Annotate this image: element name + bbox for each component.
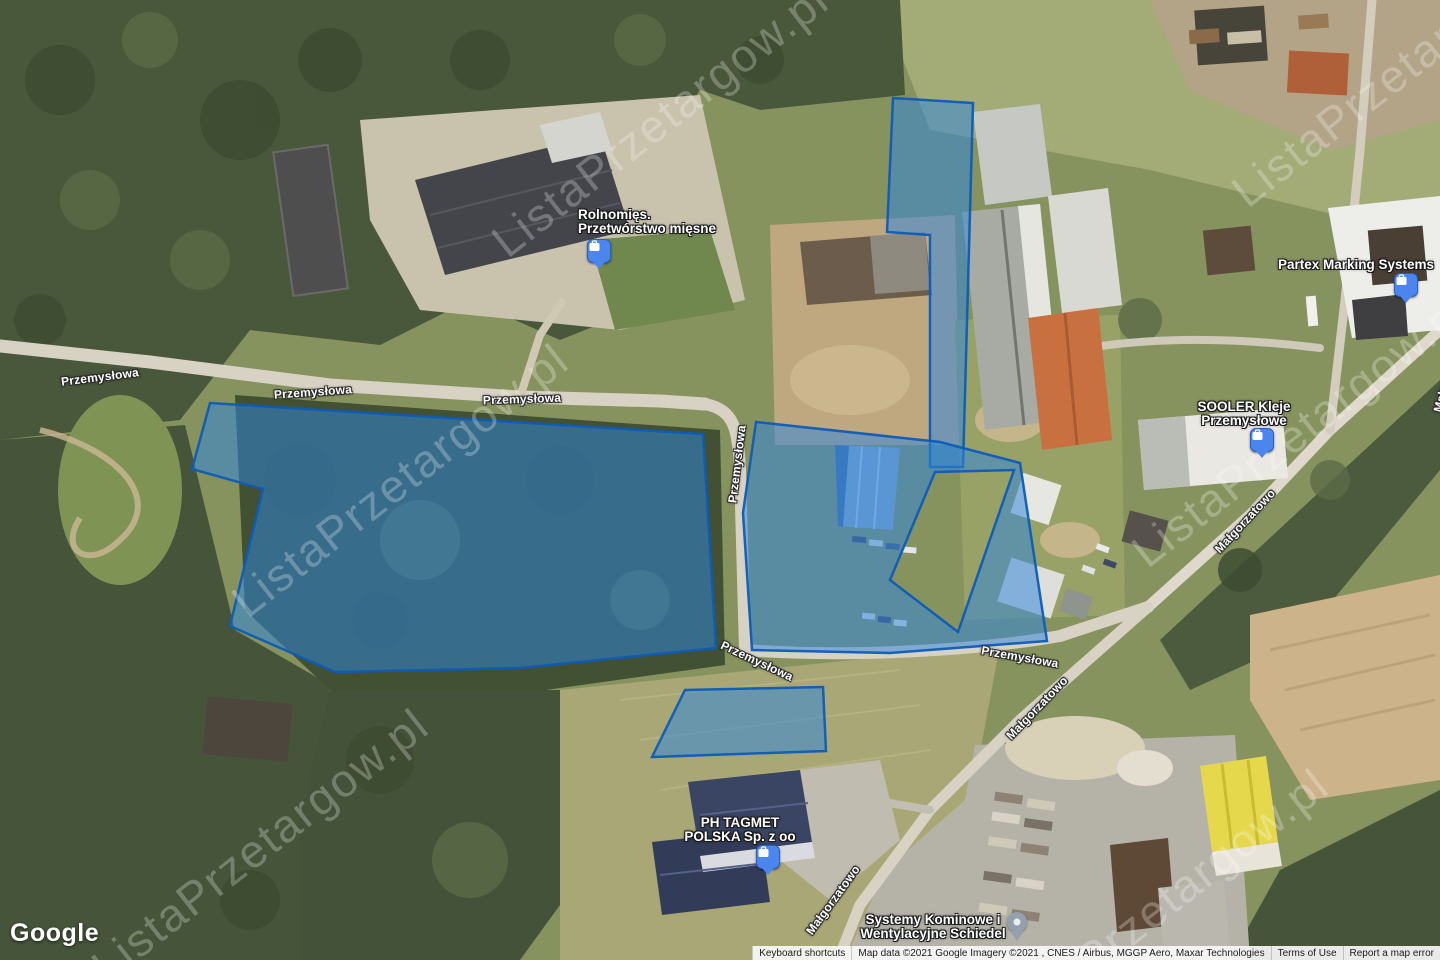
place-label-partex[interactable]: Partex Marking Systems	[1278, 258, 1434, 272]
poi-marker-sooler[interactable]	[1250, 428, 1274, 452]
place-label-sooler[interactable]: SOOLER Kleje Przemysłowe	[1197, 400, 1290, 428]
place-label-line: POLSKA Sp. z oo	[684, 829, 795, 844]
poi-marker-schiedel[interactable]	[1007, 912, 1027, 932]
place-label-line: Przetwórstwo mięsne	[578, 221, 716, 236]
map-data-attribution: Map data ©2021 Google Imagery ©2021 , CN…	[851, 946, 1270, 960]
poi-marker-rolnomies[interactable]	[587, 239, 611, 263]
briefcase-icon	[1395, 274, 1408, 287]
place-label-line: Przemysłowe	[1201, 413, 1287, 428]
keyboard-shortcuts-button[interactable]: Keyboard shortcuts	[752, 946, 851, 960]
map-viewport[interactable]: ListaPrzetargow.pl ListaPrzetargow.pl Li…	[0, 0, 1440, 960]
poi-marker-partex[interactable]	[1394, 273, 1418, 297]
terms-of-use-text[interactable]: Terms of Use	[1278, 948, 1337, 959]
place-label-line: PH TAGMET	[701, 815, 780, 830]
report-map-error-text[interactable]: Report a map error	[1350, 948, 1434, 959]
place-label-line: Partex Marking Systems	[1278, 257, 1434, 272]
poi-marker-tagmet[interactable]	[756, 845, 780, 869]
google-logo: Google	[10, 919, 99, 948]
terms-of-use-link[interactable]: Terms of Use	[1271, 946, 1343, 960]
pin-dot	[1014, 919, 1021, 926]
report-map-error-link[interactable]: Report a map error	[1343, 946, 1440, 960]
attribution-bar: Keyboard shortcuts Map data ©2021 Google…	[752, 946, 1440, 960]
road-label-przemyslowa: Przemysłowa	[483, 391, 562, 408]
place-label-schiedel[interactable]: Systemy Kominowe i Wentylacyjne Schiedel	[860, 913, 1005, 941]
place-label-line: SOOLER Kleje	[1197, 399, 1290, 414]
briefcase-icon	[1251, 429, 1264, 442]
place-label-line: Wentylacyjne Schiedel	[860, 926, 1005, 941]
place-label-tagmet[interactable]: PH TAGMET POLSKA Sp. z oo	[684, 816, 795, 844]
briefcase-icon	[588, 240, 601, 253]
place-label-rolnomies[interactable]: Rolnomięs. Przetwórstwo mięsne	[578, 208, 716, 236]
place-label-line: Systemy Kominowe i	[865, 912, 1000, 927]
briefcase-icon	[757, 846, 770, 859]
place-label-line: Rolnomięs.	[578, 207, 651, 222]
parcel-west-forest[interactable]	[192, 403, 716, 672]
